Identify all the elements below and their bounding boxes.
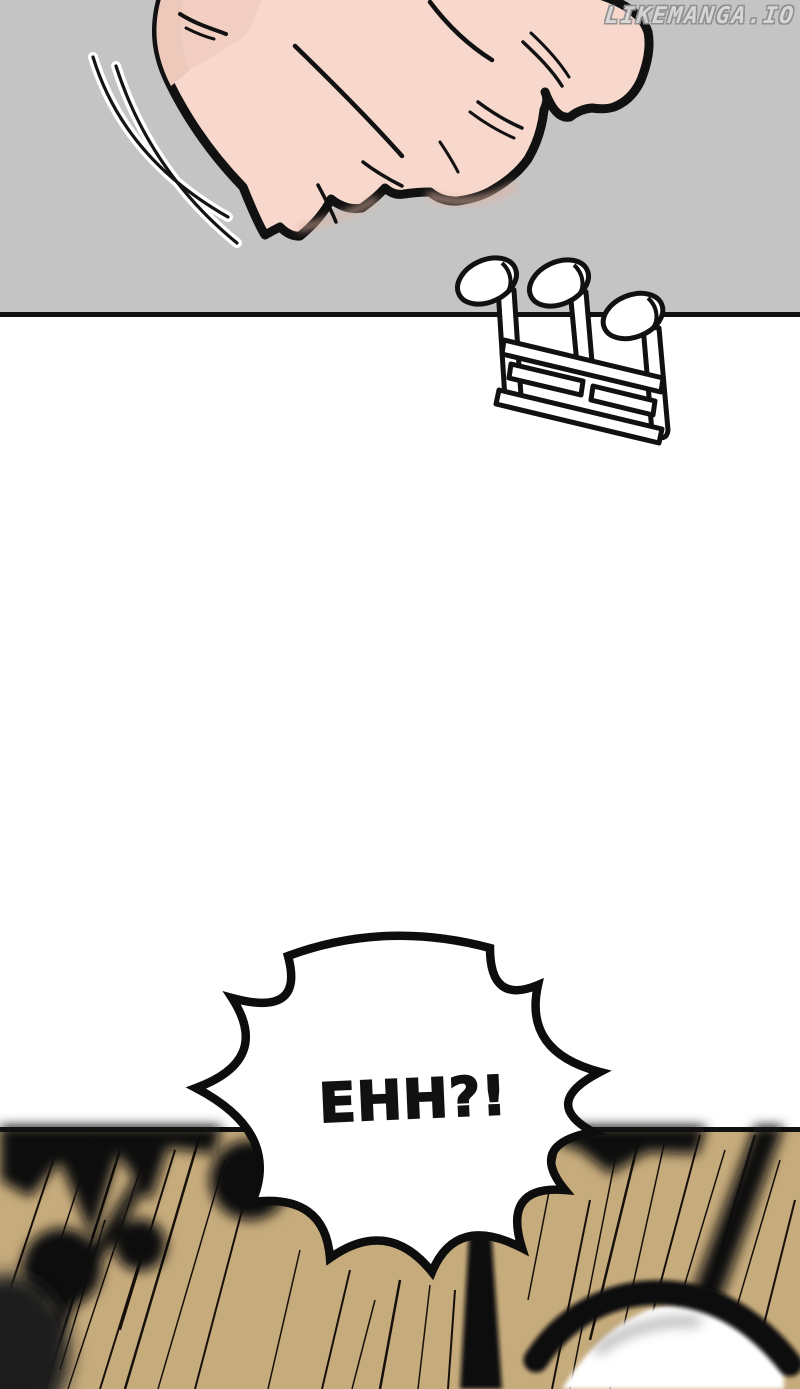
site-watermark: LIKEMANGA.IO [603, 3, 796, 29]
top-panel-border [0, 312, 800, 317]
comic-page-art [0, 0, 800, 1389]
fist-punch-panel [0, 0, 800, 317]
comic-reader-page: EHH?! LIKEMANGA.IO [0, 0, 800, 1389]
